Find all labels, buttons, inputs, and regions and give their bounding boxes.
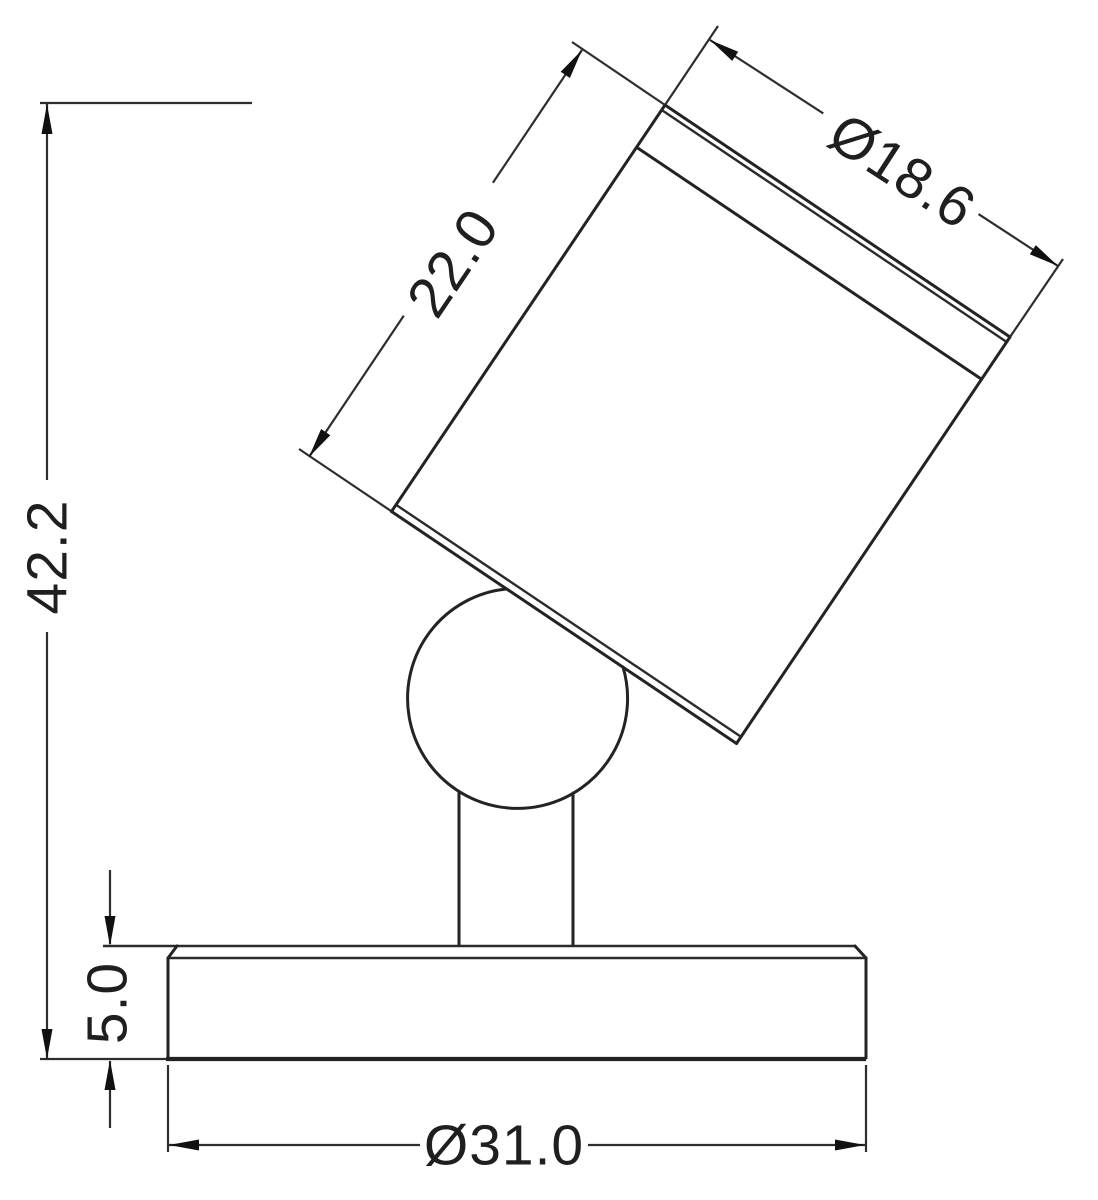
- thickness-arrow-down: [105, 916, 116, 946]
- drawing-canvas: 42.2 22.0 Ø18.6 5.0 Ø31.0: [0, 0, 1098, 1200]
- head-length-dimension: 22.0: [299, 42, 665, 511]
- head-back-edge-outer: [392, 512, 737, 744]
- base-diameter-label: Ø31.0: [424, 1114, 584, 1178]
- overall-height-label: 42.2: [16, 500, 80, 615]
- ball-joint: [408, 589, 628, 808]
- base-thickness-dimension: 5.0: [76, 870, 140, 1128]
- head-length-arrow-lower: [309, 429, 330, 457]
- head-diameter-label: Ø18.6: [818, 101, 987, 242]
- height-arrow-down: [42, 1029, 53, 1059]
- base-top-left-chamfer: [168, 946, 177, 958]
- head-length-ext-bottom: [299, 449, 391, 511]
- head-dia-arrow-left: [710, 40, 738, 61]
- overall-height-dimension: 42.2: [16, 103, 252, 1059]
- base-thickness-label: 5.0: [76, 962, 140, 1044]
- head-diameter-dimension: Ø18.6: [665, 26, 1063, 337]
- thickness-arrow-up: [105, 1060, 116, 1090]
- ball-outline: [408, 589, 628, 808]
- stem: [459, 792, 573, 945]
- base-top-right-chamfer: [855, 946, 866, 958]
- head-dia-ext-left: [665, 26, 718, 105]
- base-diameter-dimension: Ø31.0: [168, 1065, 866, 1178]
- head-length-label: 22.0: [395, 197, 512, 328]
- head-right-side-edge: [737, 337, 1011, 744]
- head-length-arrow-upper: [561, 50, 582, 78]
- head-dia-ext-right: [1010, 259, 1063, 337]
- head-back-edge-inner: [397, 505, 742, 737]
- base-dia-arrow-right: [835, 1140, 865, 1151]
- height-arrow-up: [42, 104, 53, 134]
- head-length-ext-top: [572, 42, 665, 105]
- base-plate: [40, 946, 866, 1059]
- head-dia-arrow-right: [1030, 245, 1058, 266]
- spotlight-dimension-drawing: 42.2 22.0 Ø18.6 5.0 Ø31.0: [0, 0, 1098, 1200]
- base-dia-arrow-left: [169, 1140, 199, 1151]
